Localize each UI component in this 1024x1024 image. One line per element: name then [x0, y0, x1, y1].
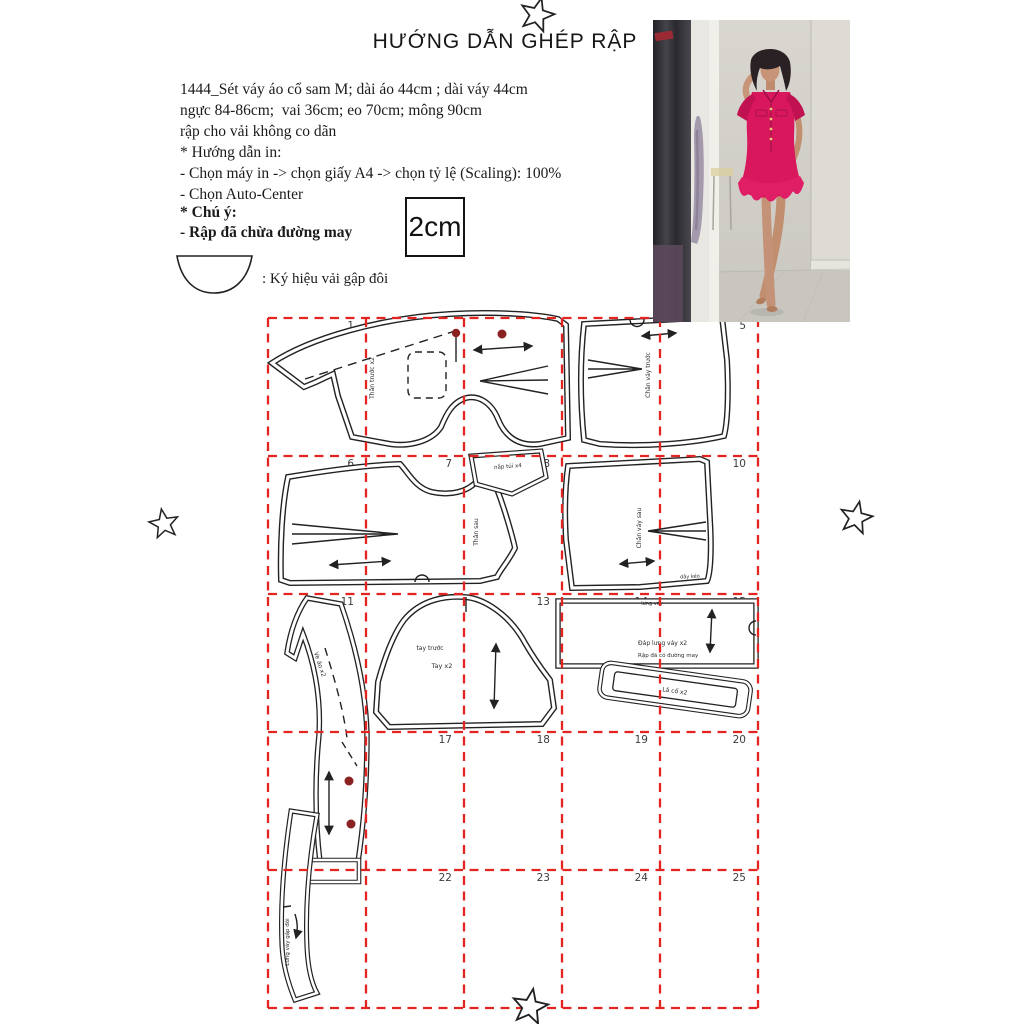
pattern-piece-front-bodice: Thân trước x2 — [272, 313, 568, 445]
page-number: 10 — [733, 458, 746, 470]
star-icon — [838, 498, 876, 534]
page-number: 19 — [635, 734, 648, 746]
pattern-piece-waistband: Lưng váy gập đôi — [281, 811, 317, 1000]
piece-note-zipper: dây kéo — [680, 572, 700, 580]
star-icon — [510, 986, 550, 1024]
page-number: 24 — [635, 872, 649, 884]
piece-label-waist-facing: Đáp lưng váy x2 — [638, 640, 687, 647]
product-photo — [653, 20, 850, 322]
pattern-piece-back-skirt: Chân váy sau dây kéo — [565, 459, 711, 588]
page-number: 7 — [445, 458, 452, 470]
piece-label-waistband: Lưng váy gập đôi — [284, 918, 291, 966]
page-number: 25 — [733, 872, 746, 884]
piece-label-back-bodice: Thân sau — [473, 518, 480, 547]
piece-label-front-skirt: Chân váy trước — [645, 352, 652, 398]
product-photo-art — [653, 20, 850, 322]
piece-label-sleeve: Tay x2 — [431, 662, 453, 670]
pattern-piece-collar: Lá cổ x2 — [598, 662, 751, 718]
page-number: 18 — [537, 734, 550, 746]
piece-label-front-bodice: Thân trước x2 — [369, 357, 376, 400]
page-number: 17 — [439, 734, 452, 746]
pattern-piece-pocket-flap: nắp túi x4 — [471, 451, 546, 494]
pattern-board: 1 2 3 4 5 6 7 8 9 10 11 12 13 14 15 16 1… — [0, 0, 1024, 1024]
page-number: 22 — [439, 872, 452, 884]
pattern-piece-waist-facing: lưng váy Đáp lưng váy x2 Rập đã có đường… — [558, 600, 756, 666]
star-icon — [147, 507, 180, 539]
piece-label-back-skirt: Chân váy sau — [636, 507, 643, 548]
star-icon — [517, 0, 558, 33]
page-number: 13 — [537, 596, 550, 608]
page-number: 20 — [733, 734, 746, 746]
page-number: 23 — [537, 872, 550, 884]
piece-note-sleeve-front: tay trước — [416, 645, 443, 652]
pattern-piece-front-skirt: Chân váy trước — [581, 317, 728, 445]
pattern-instruction-sheet: HƯỚNG DẪN GHÉP RẬP 1444_Sét váy áo cổ sa… — [0, 0, 1024, 1024]
piece-note-seam-allowance: Rập đã có đường may — [638, 652, 699, 659]
